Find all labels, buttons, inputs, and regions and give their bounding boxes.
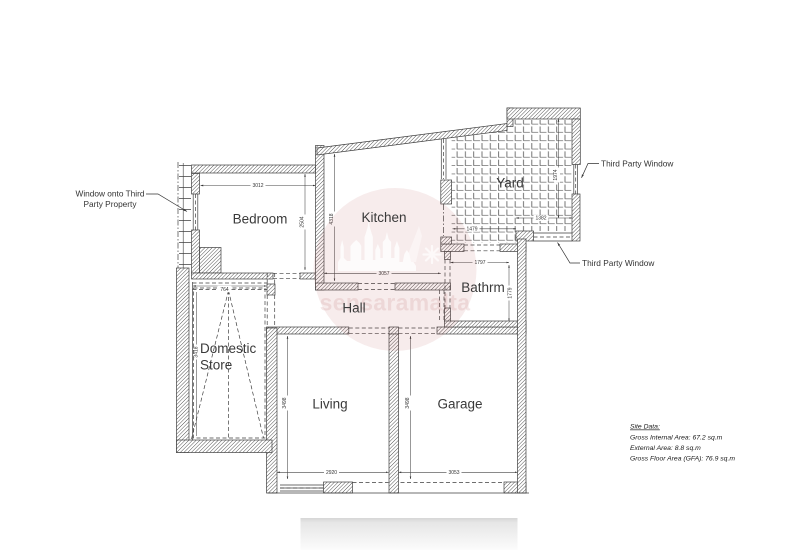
svg-text:3053: 3053 <box>448 470 459 476</box>
svg-text:1479: 1479 <box>466 227 477 233</box>
svg-text:1779: 1779 <box>508 287 514 298</box>
svg-text:Hall: Hall <box>342 301 365 316</box>
svg-text:1974: 1974 <box>553 169 559 180</box>
svg-text:Third Party Window: Third Party Window <box>601 159 674 169</box>
svg-text:764: 764 <box>220 287 229 293</box>
svg-text:Site Data:: Site Data: <box>630 424 660 431</box>
svg-text:Garage: Garage <box>437 397 482 412</box>
svg-text:2920: 2920 <box>326 470 337 476</box>
svg-text:1382: 1382 <box>535 216 546 222</box>
svg-text:2504: 2504 <box>300 216 306 227</box>
svg-text:Living: Living <box>312 397 347 412</box>
svg-text:Window onto Third: Window onto Third <box>75 189 144 199</box>
svg-text:Domestic: Domestic <box>200 341 257 356</box>
svg-text:3498: 3498 <box>282 397 288 408</box>
svg-text:Kitchen: Kitchen <box>361 210 406 225</box>
svg-text:Gross Internal Area: 67.2 sq.m: Gross Internal Area: 67.2 sq.m <box>630 435 723 442</box>
svg-text:3418: 3418 <box>194 346 200 357</box>
svg-text:Store: Store <box>200 358 232 373</box>
svg-text:Bathrm: Bathrm <box>461 280 505 295</box>
svg-text:Gross Floor Area (GFA): 76.9 s: Gross Floor Area (GFA): 76.9 sq.m <box>630 456 735 463</box>
svg-text:Bedroom: Bedroom <box>233 212 288 227</box>
svg-text:3498: 3498 <box>405 397 411 408</box>
svg-text:External Area: 8.8 sq.m: External Area: 8.8 sq.m <box>630 445 701 452</box>
svg-text:Yard: Yard <box>496 176 524 191</box>
svg-text:3012: 3012 <box>252 183 263 189</box>
svg-text:Party Property: Party Property <box>83 199 137 209</box>
svg-text:Third Party Window: Third Party Window <box>582 258 655 268</box>
